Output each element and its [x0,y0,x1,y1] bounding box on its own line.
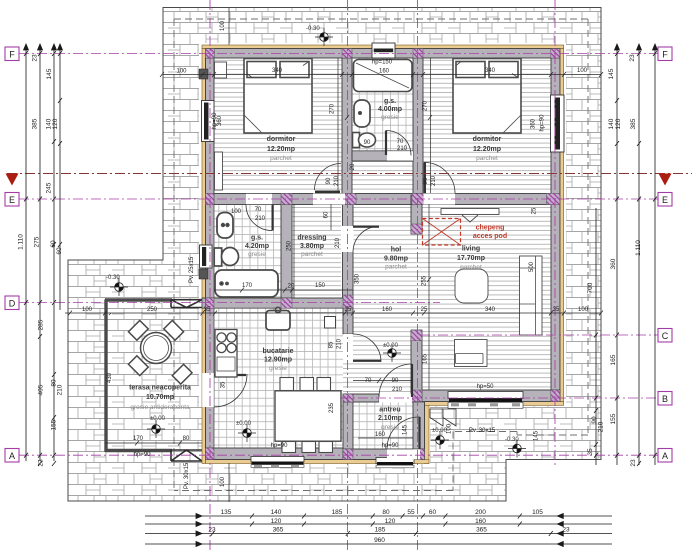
svg-text:100: 100 [176,69,187,75]
svg-text:1.110: 1.110 [18,234,25,250]
svg-text:parchet: parchet [385,264,407,271]
svg-text:A: A [9,451,15,461]
svg-text:210: 210 [431,175,437,186]
svg-text:270: 270 [330,103,336,114]
svg-text:1.110: 1.110 [635,240,642,256]
svg-text:60: 60 [324,211,330,218]
svg-text:150: 150 [315,283,326,289]
svg-text:A: A [662,451,668,461]
svg-text:145: 145 [46,68,53,79]
svg-text:60: 60 [56,247,63,255]
svg-text:3.80mp: 3.80mp [300,243,324,250]
svg-text:F: F [9,50,15,60]
svg-text:±0.00: ±0.00 [383,343,399,349]
svg-text:135: 135 [221,509,232,516]
svg-text:35: 35 [221,381,227,388]
svg-text:bucatarie: bucatarie [262,348,293,355]
svg-text:17.70mp: 17.70mp [457,255,485,262]
svg-text:360: 360 [610,258,617,269]
svg-text:285: 285 [38,319,45,330]
svg-text:200: 200 [475,509,486,516]
svg-text:25: 25 [421,307,428,313]
svg-text:Pv. 30x15: Pv. 30x15 [469,428,496,434]
svg-text:living: living [462,246,480,253]
svg-text:210: 210 [397,146,408,152]
svg-text:±0.00: ±0.00 [150,416,166,422]
svg-text:100: 100 [577,68,588,74]
svg-text:20: 20 [288,284,295,290]
svg-text:210: 210 [57,384,64,395]
svg-text:250: 250 [147,307,158,313]
svg-text:160: 160 [375,432,386,438]
svg-text:chepeng: chepeng [476,225,505,232]
svg-text:275: 275 [34,236,41,247]
svg-text:hol: hol [391,247,402,254]
svg-text:100: 100 [220,20,226,31]
svg-text:210: 210 [255,216,266,222]
svg-text:antreu: antreu [379,407,400,414]
svg-text:365: 365 [273,527,284,534]
svg-text:4.20mp: 4.20mp [245,243,269,250]
svg-text:23: 23 [208,527,216,534]
svg-text:parchet: parchet [270,155,292,162]
svg-text:250: 250 [287,240,293,251]
svg-text:-0.30: -0.30 [106,275,120,281]
svg-text:90: 90 [423,177,429,184]
svg-text:385: 385 [32,118,39,129]
svg-text:23: 23 [562,527,570,534]
svg-text:hp=90: hp=90 [134,452,152,458]
svg-text:70: 70 [255,207,262,213]
svg-text:35: 35 [587,448,594,456]
svg-text:185: 185 [332,509,343,516]
svg-text:-0.30: -0.30 [306,26,320,32]
svg-text:C: C [662,331,669,341]
svg-text:80: 80 [382,509,390,516]
svg-text:960: 960 [374,537,385,544]
svg-text:405: 405 [38,384,45,395]
svg-text:85: 85 [329,341,335,348]
svg-text:60: 60 [429,509,437,516]
svg-text:12.20mp: 12.20mp [267,146,295,153]
svg-text:145: 145 [403,424,409,435]
svg-text:Pv. 25x15: Pv. 25x15 [189,256,195,283]
svg-text:100: 100 [447,423,453,434]
svg-text:170: 170 [133,436,144,442]
svg-text:D: D [9,299,16,309]
svg-text:160: 160 [382,307,393,313]
svg-text:23: 23 [630,459,637,467]
svg-text:100: 100 [231,209,242,215]
svg-text:140: 140 [271,509,282,516]
svg-text:100: 100 [82,307,93,313]
svg-text:55: 55 [407,509,415,516]
svg-text:350: 350 [355,273,361,284]
svg-text:170: 170 [242,283,253,289]
svg-text:g.s.: g.s. [251,235,263,242]
svg-text:E: E [662,195,668,205]
svg-text:70: 70 [397,139,404,145]
svg-text:23: 23 [38,459,45,467]
svg-text:acces pod: acces pod [473,233,507,240]
svg-text:dormitor: dormitor [473,136,502,143]
svg-text:210: 210 [392,387,403,393]
svg-text:210: 210 [598,421,605,432]
svg-text:210: 210 [334,175,340,186]
svg-text:gresie: gresie [381,114,399,121]
svg-text:23: 23 [629,54,636,62]
svg-text:hp=50: hp=50 [477,384,495,390]
svg-text:105: 105 [532,509,543,516]
svg-text:F: F [662,50,668,60]
svg-text:g.s.: g.s. [384,98,396,105]
svg-text:245: 245 [46,182,53,193]
svg-text:60: 60 [50,240,57,248]
svg-text:dressing: dressing [297,235,326,242]
svg-text:25: 25 [532,207,538,214]
svg-text:100: 100 [220,476,226,487]
svg-text:155: 155 [51,419,58,430]
svg-text:20: 20 [350,163,356,170]
svg-text:90: 90 [364,140,371,146]
svg-text:385: 385 [630,118,637,129]
svg-text:340: 340 [485,68,496,74]
svg-text:360: 360 [531,118,537,129]
svg-text:120: 120 [615,118,622,129]
svg-text:160: 160 [379,69,390,75]
svg-text:120: 120 [271,518,282,525]
svg-text:500: 500 [529,261,535,272]
svg-text:-0.30: -0.30 [505,437,519,443]
svg-text:gresie: gresie [381,424,399,431]
svg-text:340: 340 [485,307,496,313]
svg-text:120: 120 [52,118,59,129]
svg-text:B: B [662,394,668,404]
svg-text:12.20mp: 12.20mp [473,146,501,153]
svg-text:hp=90: hp=90 [540,114,546,132]
svg-text:hp=150: hp=150 [372,60,393,66]
svg-text:360: 360 [217,115,223,126]
svg-text:70: 70 [365,378,372,384]
svg-text:120: 120 [385,518,396,525]
svg-text:100: 100 [578,307,589,313]
svg-text:185: 185 [375,527,386,534]
svg-text:700: 700 [587,282,594,293]
svg-text:255: 255 [422,275,428,286]
svg-text:90: 90 [392,378,399,384]
svg-text:80: 80 [183,436,190,442]
svg-text:165: 165 [423,353,429,364]
svg-text:parchet: parchet [301,251,323,258]
svg-text:gresie antiderapanta: gresie antiderapanta [130,404,190,411]
svg-text:parchet: parchet [460,264,482,271]
svg-text:9.80mp: 9.80mp [384,256,408,263]
svg-text:dormitor: dormitor [267,136,296,143]
svg-text:235: 235 [329,402,335,413]
svg-text:35: 35 [553,307,560,313]
svg-text:hp=90: hp=90 [271,443,289,449]
svg-text:270: 270 [423,100,429,111]
svg-text:25: 25 [345,307,352,313]
svg-text:4.00mp: 4.00mp [378,106,402,113]
svg-text:E: E [9,195,15,205]
svg-text:210: 210 [335,237,341,248]
svg-text:210: 210 [337,338,343,349]
svg-text:Pv. 30x15: Pv. 30x15 [184,462,190,489]
svg-text:gresie: gresie [248,251,266,258]
svg-text:35: 35 [204,307,211,313]
svg-text:terasa neacoperita: terasa neacoperita [129,385,191,392]
svg-text:145: 145 [534,430,540,441]
svg-text:10.70mp: 10.70mp [146,394,174,401]
svg-text:2.10mp: 2.10mp [378,415,402,422]
svg-text:parchet: parchet [476,155,498,162]
svg-text:340: 340 [272,68,283,74]
svg-text:140: 140 [608,118,615,129]
svg-text:365: 365 [476,527,487,534]
svg-text:430: 430 [107,372,113,383]
svg-text:160: 160 [475,518,486,525]
svg-text:90: 90 [326,177,332,184]
svg-text:hp=90: hp=90 [382,443,400,449]
svg-text:gresie: gresie [269,365,287,372]
svg-text:±0.00: ±0.00 [432,428,448,434]
svg-text:165: 165 [610,354,617,365]
svg-text:23: 23 [32,54,39,62]
svg-text:±0.00: ±0.00 [236,421,252,427]
svg-text:12.90mp: 12.90mp [264,357,292,364]
svg-text:155: 155 [610,413,617,424]
svg-text:145: 145 [608,68,615,79]
